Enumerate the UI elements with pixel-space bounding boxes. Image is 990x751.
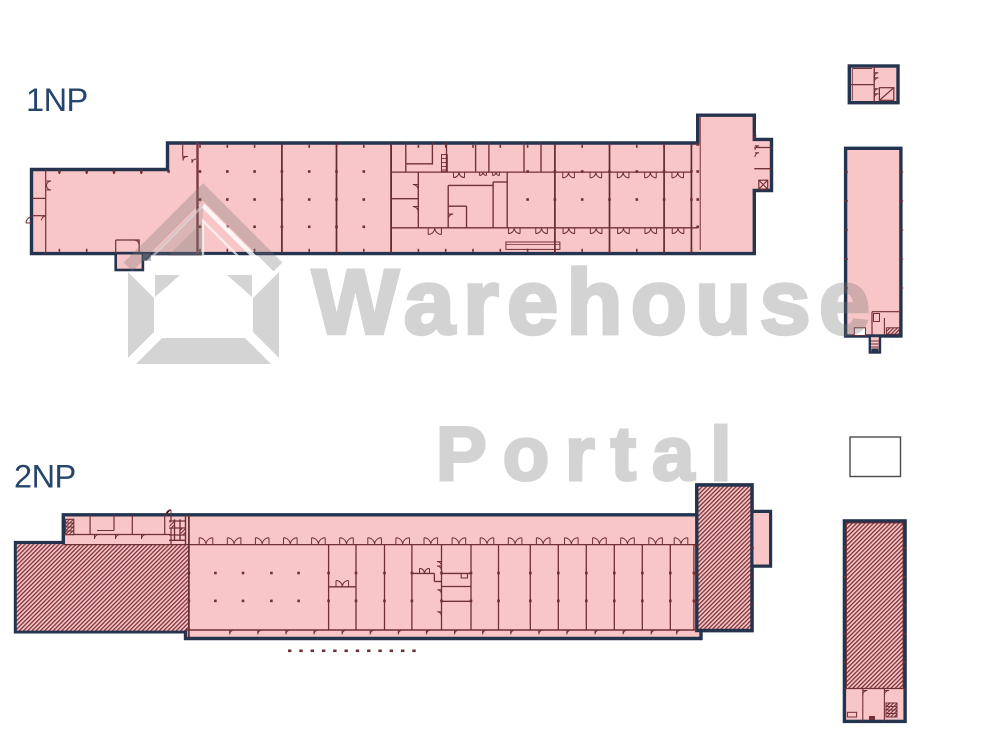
svg-text:1NP: 1NP (26, 82, 88, 118)
svg-text:2NP: 2NP (14, 459, 76, 495)
svg-text:Warehouse: Warehouse (312, 252, 878, 354)
